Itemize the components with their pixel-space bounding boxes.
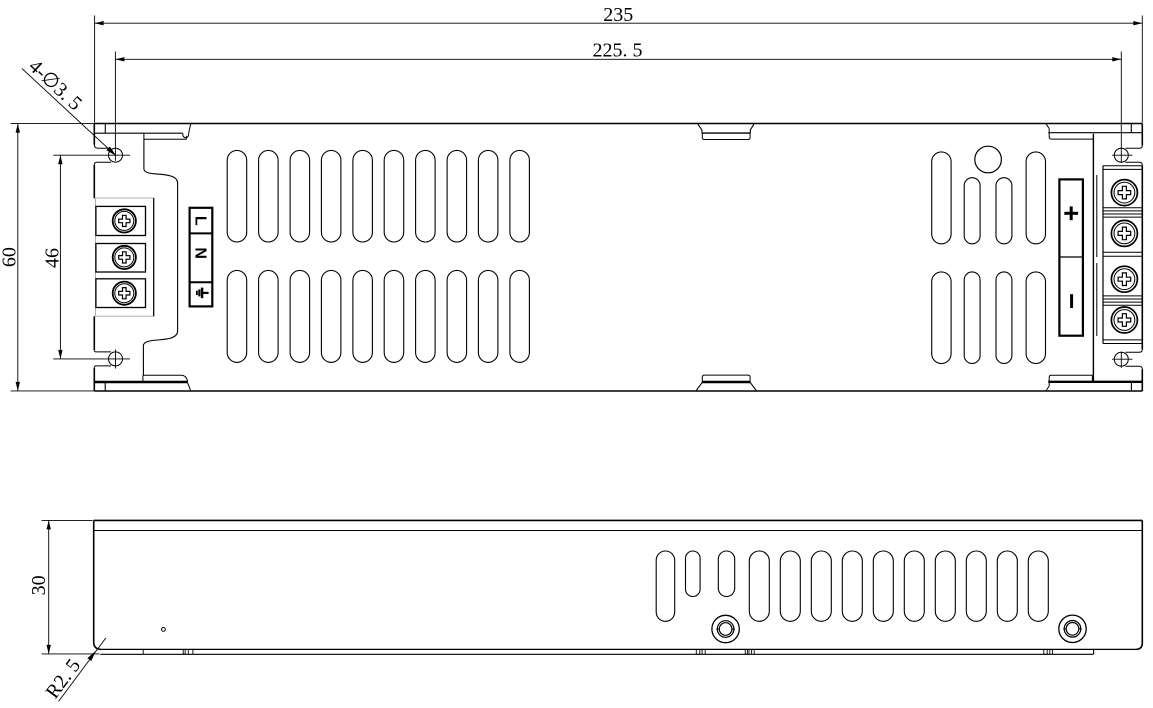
- svg-text:235: 235: [603, 4, 633, 26]
- svg-text:N: N: [192, 247, 209, 259]
- svg-text:225. 5: 225. 5: [593, 39, 643, 61]
- svg-text:46: 46: [41, 248, 63, 268]
- svg-text:60: 60: [0, 247, 20, 267]
- svg-text:L: L: [192, 216, 209, 226]
- svg-text:30: 30: [28, 575, 50, 595]
